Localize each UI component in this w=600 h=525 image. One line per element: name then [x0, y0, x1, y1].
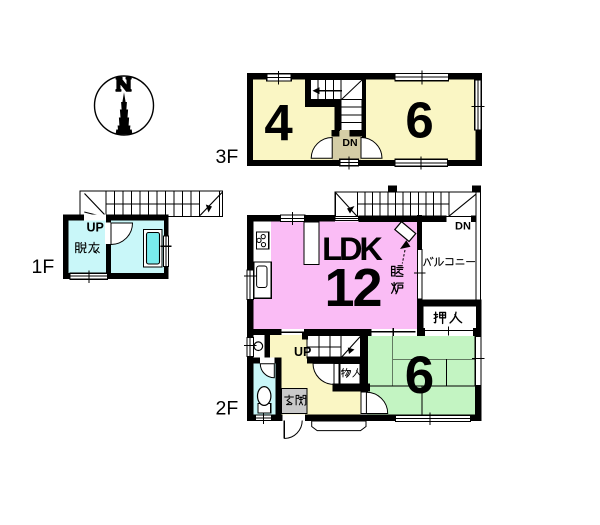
- svg-text:6: 6: [405, 346, 434, 405]
- svg-text:1F: 1F: [32, 256, 55, 278]
- svg-text:UP: UP: [87, 221, 104, 235]
- svg-text:DN: DN: [455, 221, 471, 233]
- svg-text:UP: UP: [294, 345, 311, 359]
- svg-text:3F: 3F: [216, 146, 239, 168]
- svg-text:2F: 2F: [216, 398, 239, 420]
- svg-text:4: 4: [264, 94, 293, 151]
- svg-text:DN: DN: [342, 137, 357, 149]
- svg-text:12: 12: [324, 258, 380, 318]
- svg-text:6: 6: [405, 92, 433, 149]
